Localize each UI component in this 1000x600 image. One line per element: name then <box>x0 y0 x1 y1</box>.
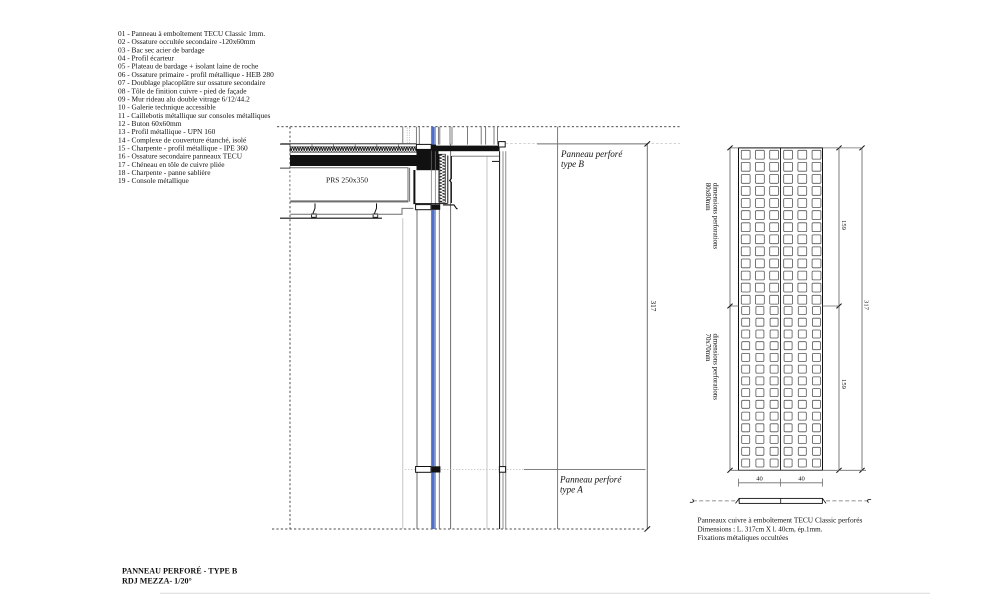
svg-text:RDJ MEZZA- 1/20°: RDJ MEZZA- 1/20° <box>122 576 192 585</box>
svg-text:dimensions perforations: dimensions perforations <box>711 183 718 250</box>
svg-text:70x70mm: 70x70mm <box>704 334 711 363</box>
svg-text:80x80mm: 80x80mm <box>704 183 711 212</box>
svg-text:317: 317 <box>649 301 657 312</box>
svg-text:159: 159 <box>840 220 847 231</box>
svg-text:Panneaux cuivre à emboîtement: Panneaux cuivre à emboîtement TECU Class… <box>698 516 863 525</box>
svg-text:Fixations métaliques occultées: Fixations métaliques occultées <box>698 533 789 542</box>
svg-text:19 - Console métallique: 19 - Console métallique <box>118 176 190 185</box>
svg-text:type A: type A <box>560 485 583 495</box>
svg-text:Panneau perforé: Panneau perforé <box>559 475 622 485</box>
svg-text:159: 159 <box>840 379 847 390</box>
svg-text:40: 40 <box>798 476 805 483</box>
svg-text:dimensions perforations: dimensions perforations <box>711 334 718 401</box>
svg-text:PRS 250x350: PRS 250x350 <box>326 176 368 185</box>
svg-text:Panneau perforé: Panneau perforé <box>560 149 623 159</box>
svg-text:317: 317 <box>863 300 870 311</box>
svg-text:type B: type B <box>561 159 584 169</box>
svg-text:40: 40 <box>756 476 763 483</box>
svg-text:PANNEAU PERFORÉ - TYPE B: PANNEAU PERFORÉ - TYPE B <box>122 566 238 576</box>
